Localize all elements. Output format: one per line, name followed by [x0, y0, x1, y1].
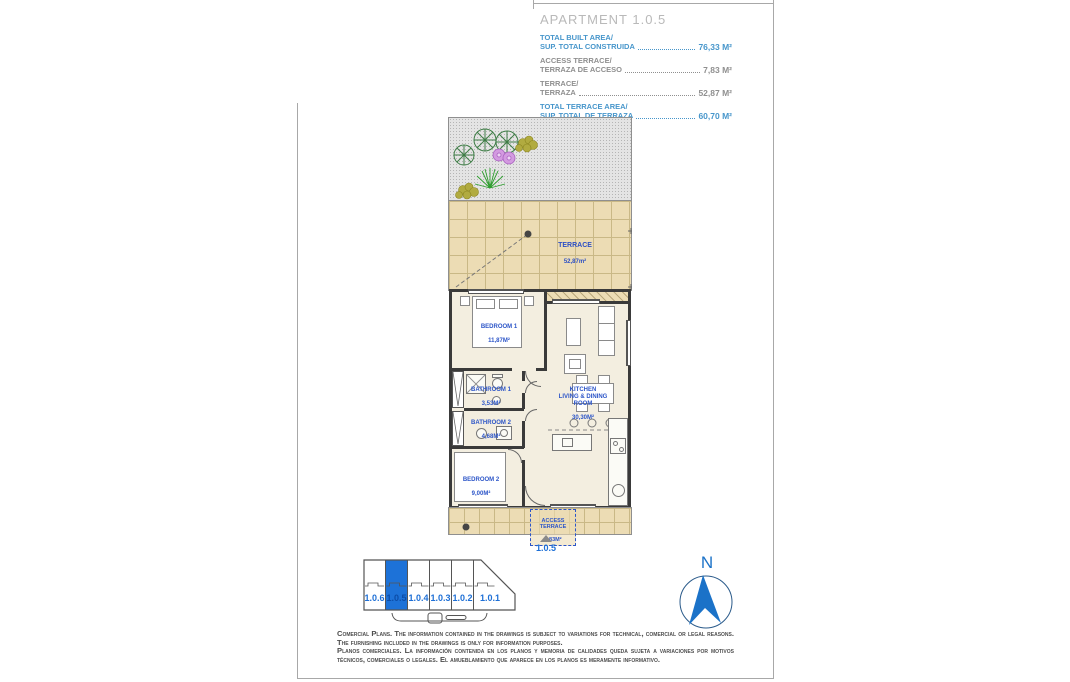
room-name: BATHROOM 2 — [471, 420, 511, 426]
apartment-interior: BEDROOM 1 11,87M² BATHROOM 1 3,53M² BATH… — [449, 289, 631, 509]
room-area: 4,68M² — [482, 434, 501, 440]
floor-plan: TERRACE 52,87m² — [448, 117, 632, 535]
area-label: TOTAL TERRACE AREA/ — [540, 102, 698, 111]
room-name: BATHROOM 1 — [471, 387, 511, 393]
pillow — [476, 299, 495, 309]
bedroom1-label: BEDROOM 1 11,87M² — [464, 317, 534, 345]
toilet-tank — [492, 374, 503, 378]
room-name: ACCESS TERRACE — [540, 518, 567, 531]
window — [468, 289, 524, 294]
area-label-es: SUP. TOTAL CONSTRUIDA — [540, 42, 635, 51]
unit-marker-icon — [540, 535, 552, 542]
disclaimer-es: Planos comerciales. La información conte… — [337, 647, 734, 664]
area-value: 60,70 M² — [698, 111, 732, 121]
area-label-es: TERRAZA DE ACCESO — [540, 65, 622, 74]
north-compass: N — [676, 550, 736, 634]
room-name: KITCHEN LIVING & DINING ROOM — [559, 387, 608, 407]
hob-burner — [619, 447, 624, 452]
unit-marker-label: 1.0.5 — [531, 543, 561, 553]
key-plan: 1.0.6 1.0.5 1.0.4 1.0.3 1.0.2 1.0.1 — [362, 556, 520, 624]
unit-label-selected: 1.0.5 — [386, 593, 406, 603]
area-row-total-built: TOTAL BUILT AREA/ SUP. TOTAL CONSTRUIDA … — [540, 33, 732, 51]
area-value: 76,33 M² — [698, 42, 732, 52]
key-plan-entrance — [392, 613, 487, 623]
sofa — [598, 306, 615, 356]
unit-label: 1.0.3 — [430, 593, 450, 603]
wall — [522, 421, 525, 448]
kitchen-sink — [612, 484, 625, 497]
north-label: N — [701, 553, 713, 572]
room-area: 11,87M² — [488, 338, 510, 344]
unit-label: 1.0.6 — [364, 593, 384, 603]
room-area: 30,30M² — [572, 415, 594, 421]
room-area: 9,00M² — [472, 491, 491, 497]
dotted-leader — [636, 117, 695, 119]
disclaimer-en: Comercial Plans. The information contain… — [337, 630, 734, 647]
dotted-leader — [625, 71, 700, 73]
wall — [452, 446, 524, 449]
terrace-label: TERRACE 52,87m² — [543, 234, 607, 266]
garden-plants-icon — [449, 118, 633, 202]
wall — [522, 393, 525, 409]
nightstand — [460, 296, 470, 306]
disclaimer-text: Comercial Plans. The information contain… — [337, 630, 734, 664]
door-bathroom2 — [525, 409, 537, 421]
wall — [544, 292, 547, 368]
nightstand — [524, 296, 534, 306]
titleblock-border-top — [533, 3, 773, 4]
garden-area — [448, 117, 632, 201]
bathroom1-label: BATHROOM 1 3,53M² — [462, 380, 520, 408]
island-sink — [562, 438, 573, 447]
key-plan-unit-labels: 1.0.6 1.0.5 1.0.4 1.0.3 1.0.2 1.0.1 — [364, 593, 500, 603]
unit-label: 1.0.2 — [452, 593, 472, 603]
room-area: 52,87m² — [564, 259, 586, 265]
unit-label: 1.0.4 — [408, 593, 428, 603]
window — [626, 320, 631, 366]
room-name: TERRACE — [558, 242, 592, 249]
area-row-terrace: TERRACE/ TERRAZA 52,87 M² — [540, 79, 732, 97]
wall — [522, 460, 525, 506]
area-label: ACCESS TERRACE/ — [540, 56, 703, 65]
coffee-table — [566, 318, 581, 346]
area-value: 7,83 M² — [703, 65, 732, 75]
area-label: TOTAL BUILT AREA/ — [540, 33, 698, 42]
grass-plant-icon — [475, 168, 505, 188]
door-entry — [525, 486, 545, 506]
apartment-title: APARTMENT 1.0.5 — [540, 12, 732, 27]
sheet-border-left — [297, 103, 298, 678]
sheet-border-right — [773, 0, 774, 678]
room-area: 3,53M² — [482, 401, 501, 407]
apartment-info-panel: APARTMENT 1.0.5 TOTAL BUILT AREA/ SUP. T… — [540, 12, 732, 125]
titleblock-border-left — [533, 0, 534, 9]
area-value: 52,87 M² — [698, 88, 732, 98]
room-name: BEDROOM 1 — [481, 324, 517, 330]
dotted-leader — [579, 94, 696, 96]
kitchen-label: KITCHEN LIVING & DINING ROOM 30,30M² — [548, 380, 618, 422]
room-name: BEDROOM 2 — [463, 477, 499, 483]
pillow — [499, 299, 518, 309]
door-bathroom1 — [525, 381, 537, 393]
bathroom2-label: BATHROOM 2 4,68M² — [462, 413, 520, 441]
bedroom2-label: BEDROOM 2 9,00M² — [452, 470, 510, 498]
flowers-icon — [493, 149, 515, 164]
door-bedroom2 — [508, 449, 522, 463]
unit-label: 1.0.1 — [480, 593, 500, 603]
area-row-access-terrace: ACCESS TERRACE/ TERRAZA DE ACCESO 7,83 M… — [540, 56, 732, 74]
area-label-es: TERRAZA — [540, 88, 576, 97]
hob — [610, 438, 626, 454]
wall — [464, 408, 524, 411]
tv — [569, 359, 581, 369]
north-arrow-icon — [689, 575, 721, 625]
area-label: TERRACE/ — [540, 79, 698, 88]
access-terrace-label: ACCESS TERRACE 7,83M² — [530, 509, 576, 546]
window — [552, 299, 600, 304]
dotted-leader — [638, 48, 696, 50]
sheet-border-bottom — [297, 678, 774, 679]
hob-burner — [613, 441, 618, 446]
